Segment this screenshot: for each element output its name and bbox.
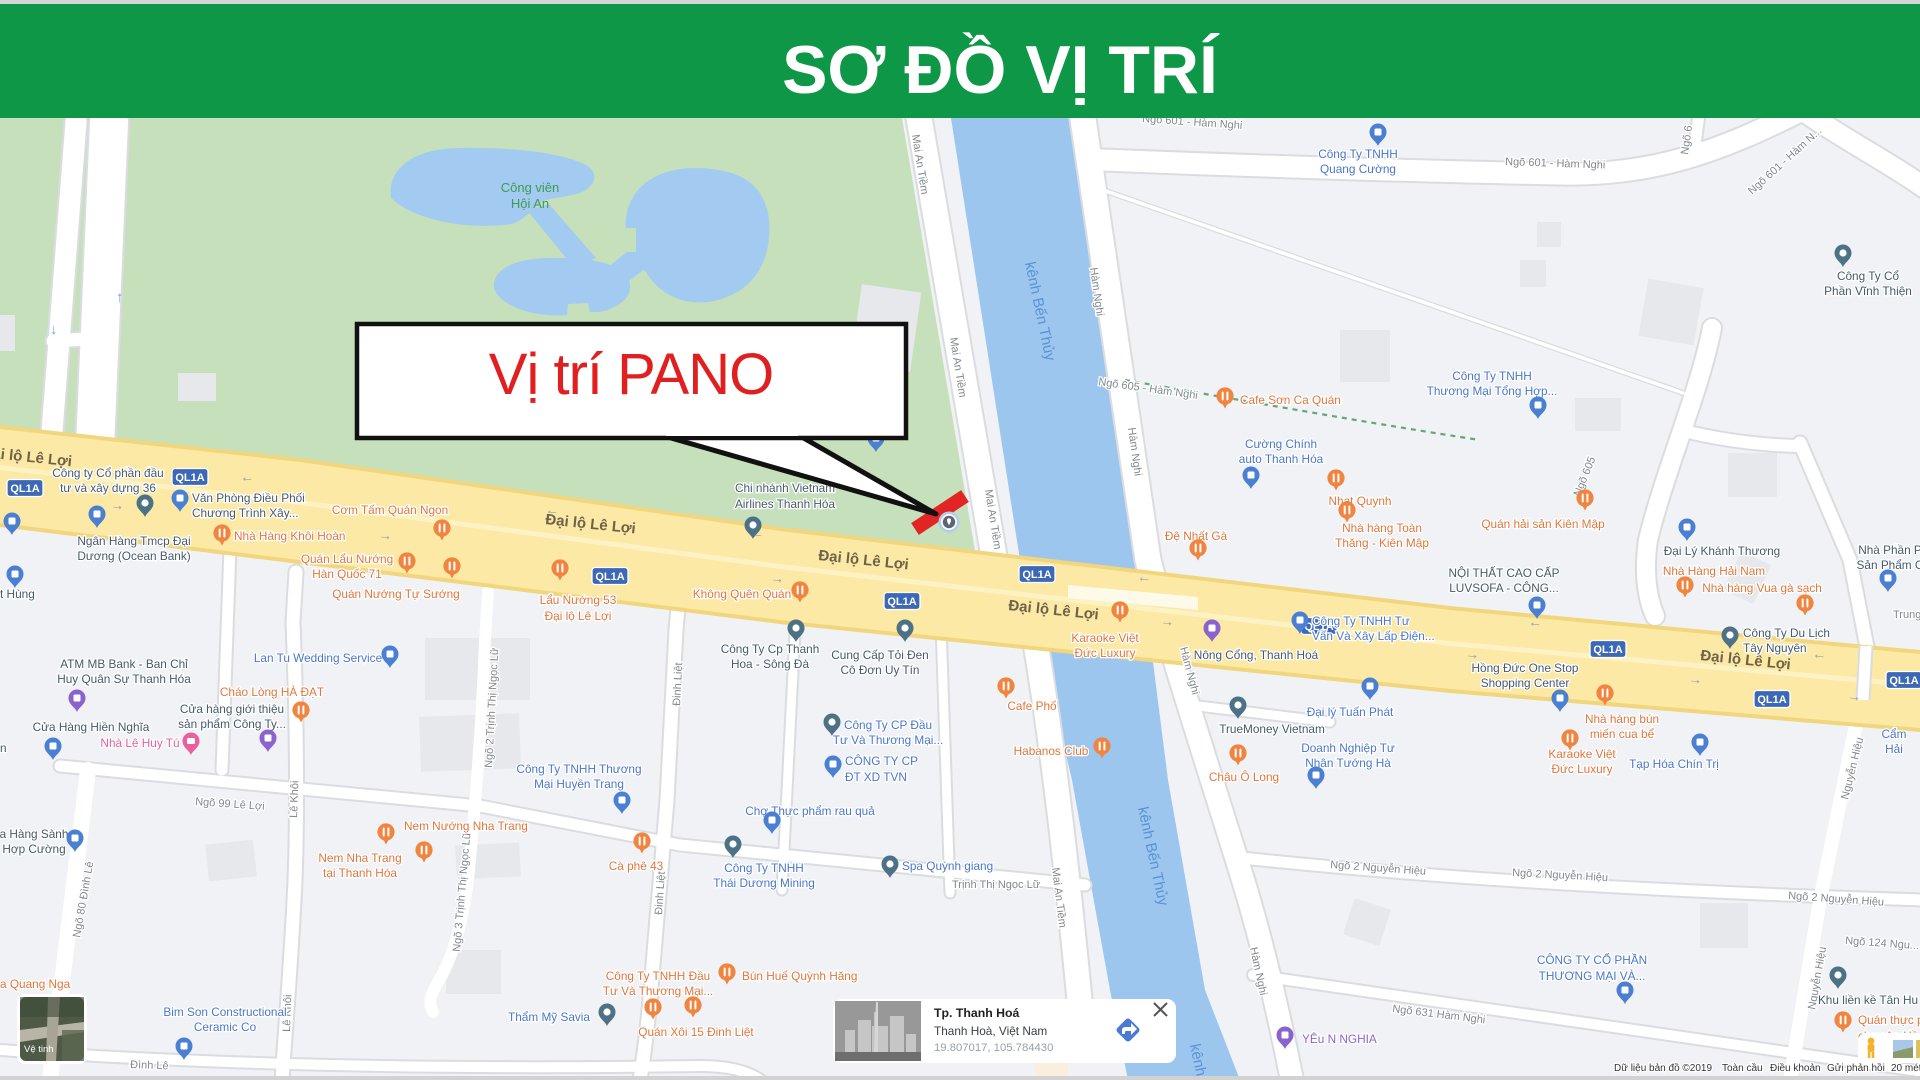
- svg-text:QL1A: QL1A: [1757, 694, 1786, 706]
- svg-text:19.807017, 105.784430: 19.807017, 105.784430: [934, 1042, 1053, 1054]
- svg-text:Habanos Club: Habanos Club: [1014, 744, 1089, 758]
- svg-text:sản phẩm Công Ty...: sản phẩm Công Ty...: [178, 717, 286, 731]
- svg-text:Nhà Hàng Hải Nam: Nhà Hàng Hải Nam: [1663, 564, 1765, 578]
- svg-text:Thăng - Kiên Mập: Thăng - Kiên Mập: [1335, 536, 1429, 550]
- svg-text:Cà phê 43: Cà phê 43: [609, 859, 664, 873]
- svg-text:Huy Quân Sự Thanh Hóa: Huy Quân Sự Thanh Hóa: [57, 672, 191, 686]
- svg-text:Quán Xôi 15 Đinh Liệt: Quán Xôi 15 Đinh Liệt: [638, 1025, 754, 1039]
- svg-text:QL1A: QL1A: [1022, 569, 1051, 581]
- svg-text:Nông Cổng, Thanh Hoá: Nông Cổng, Thanh Hoá: [1194, 648, 1319, 662]
- svg-text:QL1A: QL1A: [10, 483, 39, 495]
- svg-text:Quán hải sản Kiên Mập: Quán hải sản Kiên Mập: [1481, 517, 1605, 531]
- svg-text:Vệ tinh: Vệ tinh: [24, 1044, 54, 1055]
- svg-text:Đại Lý Khánh Thương: Đại Lý Khánh Thương: [1664, 544, 1780, 558]
- svg-text:Hàn Quốc 71: Hàn Quốc 71: [312, 567, 382, 581]
- svg-text:Cường Chính: Cường Chính: [1245, 437, 1317, 451]
- svg-text:Công Ty Cổ: Công Ty Cổ: [1837, 269, 1900, 283]
- svg-text:←: ←: [1137, 568, 1153, 585]
- svg-text:Airlines Thanh Hóa: Airlines Thanh Hóa: [735, 497, 836, 511]
- svg-text:NỘI THẤT CAO CẤP: NỘI THẤT CAO CẤP: [1449, 566, 1560, 580]
- svg-text:miến cua bể: miến cua bể: [1590, 727, 1655, 741]
- svg-text:TrueMoney Vietnam: TrueMoney Vietnam: [1219, 722, 1325, 736]
- svg-text:Cửa Hàng Hiền Nghĩa: Cửa Hàng Hiền Nghĩa: [33, 720, 150, 734]
- svg-text:Mại Huyền Trang: Mại Huyền Trang: [534, 777, 624, 791]
- svg-text:Chương Trình Xây...: Chương Trình Xây...: [192, 506, 299, 520]
- svg-text:Công Ty CP Đầu: Công Ty CP Đầu: [844, 718, 932, 732]
- svg-text:→: →: [1847, 687, 1863, 704]
- svg-text:Shopping Center: Shopping Center: [1481, 676, 1570, 690]
- svg-text:Công Ty TNHH: Công Ty TNHH: [724, 861, 804, 875]
- svg-text:Công viên: Công viên: [501, 180, 560, 195]
- svg-text:n: n: [0, 741, 7, 755]
- svg-text:Đại lý Tuấn Phát: Đại lý Tuấn Phát: [1307, 705, 1394, 719]
- svg-text:Tp. Thanh Hoá: Tp. Thanh Hoá: [934, 1006, 1020, 1020]
- svg-text:Cafe Phố: Cafe Phố: [1007, 699, 1057, 713]
- svg-text:Tư Và Thương Mại...: Tư Và Thương Mại...: [833, 733, 944, 747]
- svg-text:YÊu N NGHIA: YÊu N NGHIA: [1302, 1032, 1377, 1046]
- svg-text:Toàn cầu: Toàn cầu: [1722, 1062, 1763, 1074]
- svg-text:QL1A: QL1A: [595, 571, 624, 583]
- svg-text:Nhà Phần P: Nhà Phần P: [1858, 543, 1920, 557]
- svg-text:LUVSOFA - CÔNG...: LUVSOFA - CÔNG...: [1449, 581, 1558, 595]
- svg-text:t Hùng: t Hùng: [0, 587, 35, 601]
- svg-text:Đinh Liệt: Đinh Liệt: [671, 662, 685, 706]
- svg-text:Quán thực p: Quán thực p: [1858, 1013, 1920, 1027]
- svg-text:a Hàng Sành: a Hàng Sành: [0, 827, 68, 841]
- svg-text:Nhà Lê Huy Tú: Nhà Lê Huy Tú: [100, 736, 179, 750]
- svg-text:Bim Son Constructional: Bim Son Constructional: [163, 1005, 286, 1019]
- svg-text:SƠ ĐỒ VỊ TRÍ: SƠ ĐỒ VỊ TRÍ: [782, 31, 1220, 108]
- svg-text:Trung: Trung: [1893, 609, 1920, 621]
- svg-text:Lan Tu Wedding Service: Lan Tu Wedding Service: [254, 651, 383, 665]
- svg-text:QL1A: QL1A: [1889, 675, 1918, 687]
- svg-text:Nhat Quynh: Nhat Quynh: [1329, 494, 1392, 508]
- svg-text:Công Ty TNHH Đầu: Công Ty TNHH Đầu: [606, 969, 710, 983]
- svg-text:Cung Cấp Tỏi Đen: Cung Cấp Tỏi Đen: [831, 648, 929, 662]
- svg-text:Cô Đơn Uy Tín: Cô Đơn Uy Tín: [841, 663, 920, 677]
- svg-text:Thẩm Mỹ Savia: Thẩm Mỹ Savia: [508, 1010, 590, 1024]
- svg-text:Điều khoản: Điều khoản: [1770, 1062, 1821, 1074]
- svg-text:a Quang Nga: a Quang Nga: [0, 977, 71, 991]
- svg-text:Thanh Hoà, Việt Nam: Thanh Hoà, Việt Nam: [934, 1024, 1047, 1038]
- svg-text:Cửa hàng giới thiệu: Cửa hàng giới thiệu: [180, 702, 284, 716]
- svg-text:Nhà hàng bún: Nhà hàng bún: [1585, 712, 1659, 726]
- svg-text:tại Thanh Hóa: tại Thanh Hóa: [323, 866, 397, 880]
- svg-text:Hồng Đức One Stop: Hồng Đức One Stop: [1472, 661, 1579, 675]
- svg-text:Dương (Ocean Bank): Dương (Ocean Bank): [77, 549, 190, 563]
- svg-text:Công Ty TNHH: Công Ty TNHH: [1452, 369, 1532, 383]
- svg-text:Hội An: Hội An: [511, 196, 549, 211]
- svg-text:Bún Huế Quỳnh Hăng: Bún Huế Quỳnh Hăng: [742, 969, 857, 983]
- svg-text:Spa Quỳnh giang: Spa Quỳnh giang: [902, 859, 993, 873]
- svg-text:Karaoke Việt: Karaoke Việt: [1071, 631, 1139, 645]
- svg-text:Nem Nha Trang: Nem Nha Trang: [318, 851, 401, 865]
- svg-text:THƯƠNG MẠI VÀ...: THƯƠNG MẠI VÀ...: [1539, 969, 1646, 983]
- svg-text:Ngân Hàng Tmcp Đại: Ngân Hàng Tmcp Đại: [77, 534, 190, 548]
- svg-text:QL1A: QL1A: [887, 596, 916, 608]
- svg-text:Đức Luxury: Đức Luxury: [1074, 646, 1135, 660]
- svg-text:Cháo Lòng HÀ ĐẠT: Cháo Lòng HÀ ĐẠT: [220, 685, 324, 699]
- svg-text:Nhà hàng Toàn: Nhà hàng Toàn: [1342, 521, 1422, 535]
- svg-text:Hải: Hải: [1885, 742, 1903, 756]
- svg-text:Quang Cường: Quang Cường: [1320, 162, 1396, 176]
- svg-text:QL1A: QL1A: [1593, 644, 1622, 656]
- svg-text:→: →: [1160, 612, 1176, 629]
- svg-text:Nem Nướng Nha Trang: Nem Nướng Nha Trang: [404, 819, 528, 833]
- svg-text:Nhà Hàng Khôi Hoàn: Nhà Hàng Khôi Hoàn: [234, 529, 346, 543]
- svg-text:tư và xây dựng 36: tư và xây dựng 36: [60, 481, 156, 495]
- svg-text:←: ←: [240, 468, 256, 485]
- svg-text:Không Quên Quán: Không Quên Quán: [693, 587, 791, 601]
- svg-text:Lê Khôi: Lê Khôi: [288, 780, 301, 818]
- svg-text:Phần Vĩnh Thiện: Phần Vĩnh Thiện: [1824, 284, 1912, 298]
- svg-text:Karaoke Việt: Karaoke Việt: [1548, 747, 1616, 761]
- svg-text:Hợp Cường: Hợp Cường: [2, 842, 65, 856]
- svg-text:Cơm Tấm Quán Ngon: Cơm Tấm Quán Ngon: [332, 503, 448, 517]
- svg-text:←: ←: [1812, 645, 1828, 662]
- svg-text:Thương Mại Tổng Hợp...: Thương Mại Tổng Hợp...: [1427, 384, 1558, 398]
- svg-text:→: →: [1465, 645, 1481, 662]
- svg-text:ATM MB Bank - Ban Chỉ: ATM MB Bank - Ban Chỉ: [60, 657, 188, 671]
- svg-text:Hoa - Sông Đà: Hoa - Sông Đà: [731, 657, 809, 671]
- svg-text:Đức Luxury: Đức Luxury: [1551, 762, 1612, 776]
- svg-text:→: →: [770, 569, 786, 586]
- svg-text:Gửi phản hồi: Gửi phản hồi: [1827, 1062, 1885, 1074]
- svg-text:ĐT XD TVN: ĐT XD TVN: [845, 770, 907, 784]
- svg-text:Cẩm: Cẩm: [1882, 727, 1907, 741]
- svg-text:Công ty Cổ phần đầu: Công ty Cổ phần đầu: [52, 466, 164, 480]
- svg-text:Văn Phòng Điều Phối: Văn Phòng Điều Phối: [192, 491, 305, 505]
- svg-text:Khu liền kề Tân Hu: Khu liền kề Tân Hu: [1818, 993, 1918, 1007]
- svg-text:Thái Dương Mining: Thái Dương Mining: [713, 876, 815, 890]
- svg-text:↑: ↑: [116, 289, 124, 306]
- svg-text:Công Ty Du Lịch: Công Ty Du Lịch: [1743, 626, 1830, 640]
- svg-text:Đình Lê: Đình Lê: [130, 1059, 169, 1072]
- svg-text:Quán Lẩu Nướng: Quán Lẩu Nướng: [301, 552, 393, 566]
- svg-text:→: →: [1688, 670, 1704, 687]
- svg-text:Công Ty TNHH: Công Ty TNHH: [1318, 147, 1398, 161]
- svg-text:20 mét: 20 mét: [1891, 1063, 1920, 1074]
- svg-text:Vấn Và Xây Lấp Điện...: Vấn Và Xây Lấp Điện...: [1312, 629, 1435, 643]
- svg-text:Quán Nướng Tự Sướng: Quán Nướng Tự Sướng: [332, 587, 459, 601]
- svg-text:Dữ liệu bản đồ ©2019: Dữ liệu bản đồ ©2019: [1614, 1062, 1712, 1074]
- svg-text:CÔNG TY CP: CÔNG TY CP: [845, 754, 918, 768]
- svg-text:→: →: [110, 496, 126, 513]
- svg-text:Vị trí PANO: Vị trí PANO: [489, 342, 773, 407]
- svg-text:Tây Nguyên: Tây Nguyên: [1743, 641, 1807, 655]
- svg-text:Châu Ô Long: Châu Ô Long: [1209, 770, 1279, 784]
- svg-text:Công Ty Cp Thanh: Công Ty Cp Thanh: [721, 642, 820, 656]
- svg-text:CÔNG TY CỔ PHẦN: CÔNG TY CỔ PHẦN: [1537, 953, 1647, 967]
- svg-text:Nhà hàng Vua gà sạch: Nhà hàng Vua gà sạch: [1702, 581, 1822, 595]
- svg-text:Công Ty TNHH Tư: Công Ty TNHH Tư: [1312, 614, 1410, 628]
- svg-text:Tạp Hóa Chín Trị: Tạp Hóa Chín Trị: [1629, 757, 1719, 771]
- svg-text:Đại lộ Lê Lợi: Đại lộ Lê Lợi: [545, 609, 612, 623]
- svg-text:Cafe Sơn Ca Quán: Cafe Sơn Ca Quán: [1240, 393, 1341, 407]
- svg-text:Doanh Nghiệp Tư: Doanh Nghiệp Tư: [1301, 741, 1395, 755]
- svg-text:Trịnh Thị Ngọc Lữ: Trịnh Thị Ngọc Lữ: [952, 879, 1041, 891]
- svg-text:Lẩu Nướng 53: Lẩu Nướng 53: [540, 593, 617, 607]
- svg-text:↓: ↓: [50, 321, 58, 338]
- svg-text:Công Ty TNHH Thương: Công Ty TNHH Thương: [516, 762, 641, 776]
- svg-text:QL1A: QL1A: [175, 472, 204, 484]
- svg-text:→: →: [378, 526, 394, 543]
- svg-text:Ceramic Co: Ceramic Co: [194, 1020, 257, 1034]
- svg-text:auto Thanh Hóa: auto Thanh Hóa: [1239, 452, 1324, 466]
- svg-text:Tư Và Thương Mại...: Tư Và Thương Mại...: [603, 984, 714, 998]
